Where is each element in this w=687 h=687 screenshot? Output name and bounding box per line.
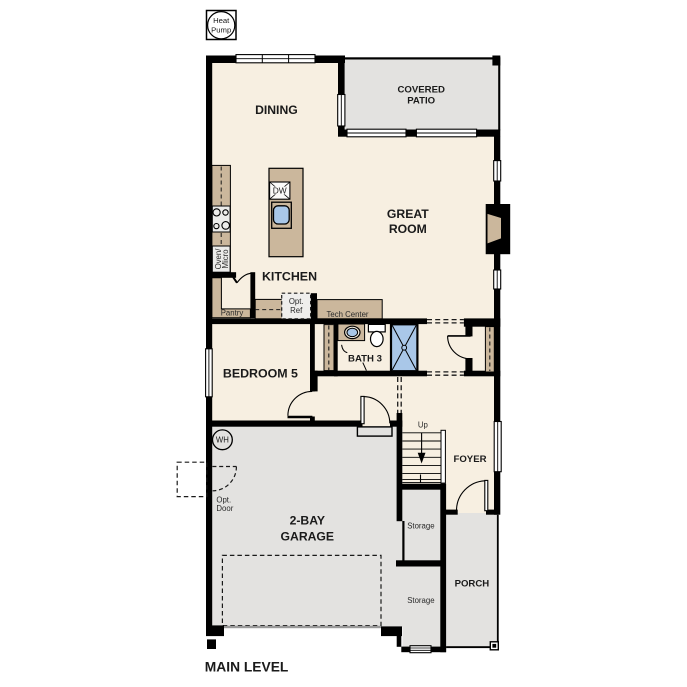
svg-text:Up: Up: [418, 421, 429, 430]
svg-text:Storage: Storage: [407, 596, 434, 605]
svg-text:BEDROOM 5: BEDROOM 5: [223, 367, 298, 381]
svg-text:Ref: Ref: [290, 306, 303, 315]
svg-text:Tech Center: Tech Center: [326, 310, 368, 319]
svg-text:Opt.: Opt.: [289, 297, 304, 306]
svg-text:Oven/Micro: Oven/Micro: [214, 248, 230, 270]
svg-text:Storage: Storage: [407, 522, 434, 531]
svg-text:PATIO: PATIO: [407, 95, 435, 106]
svg-text:GARAGE: GARAGE: [281, 530, 335, 544]
svg-text:PORCH: PORCH: [455, 578, 490, 589]
svg-text:DW: DW: [273, 186, 287, 196]
svg-text:ROOM: ROOM: [389, 222, 427, 236]
svg-text:DINING: DINING: [255, 103, 298, 117]
svg-text:COVERED: COVERED: [397, 84, 445, 95]
svg-text:Pump: Pump: [211, 25, 231, 34]
svg-text:Opt.: Opt.: [216, 495, 231, 504]
svg-text:WH: WH: [216, 436, 229, 445]
svg-text:KITCHEN: KITCHEN: [262, 269, 317, 283]
svg-text:Pantry: Pantry: [221, 309, 244, 318]
svg-text:FOYER: FOYER: [453, 454, 486, 465]
svg-text:BATH 3: BATH 3: [348, 354, 382, 365]
svg-text:Door: Door: [216, 504, 233, 513]
svg-text:GREAT: GREAT: [387, 207, 429, 221]
svg-text:2-BAY: 2-BAY: [290, 514, 325, 528]
svg-text:Heat: Heat: [213, 16, 230, 25]
svg-text:MAIN LEVEL: MAIN LEVEL: [205, 660, 289, 675]
